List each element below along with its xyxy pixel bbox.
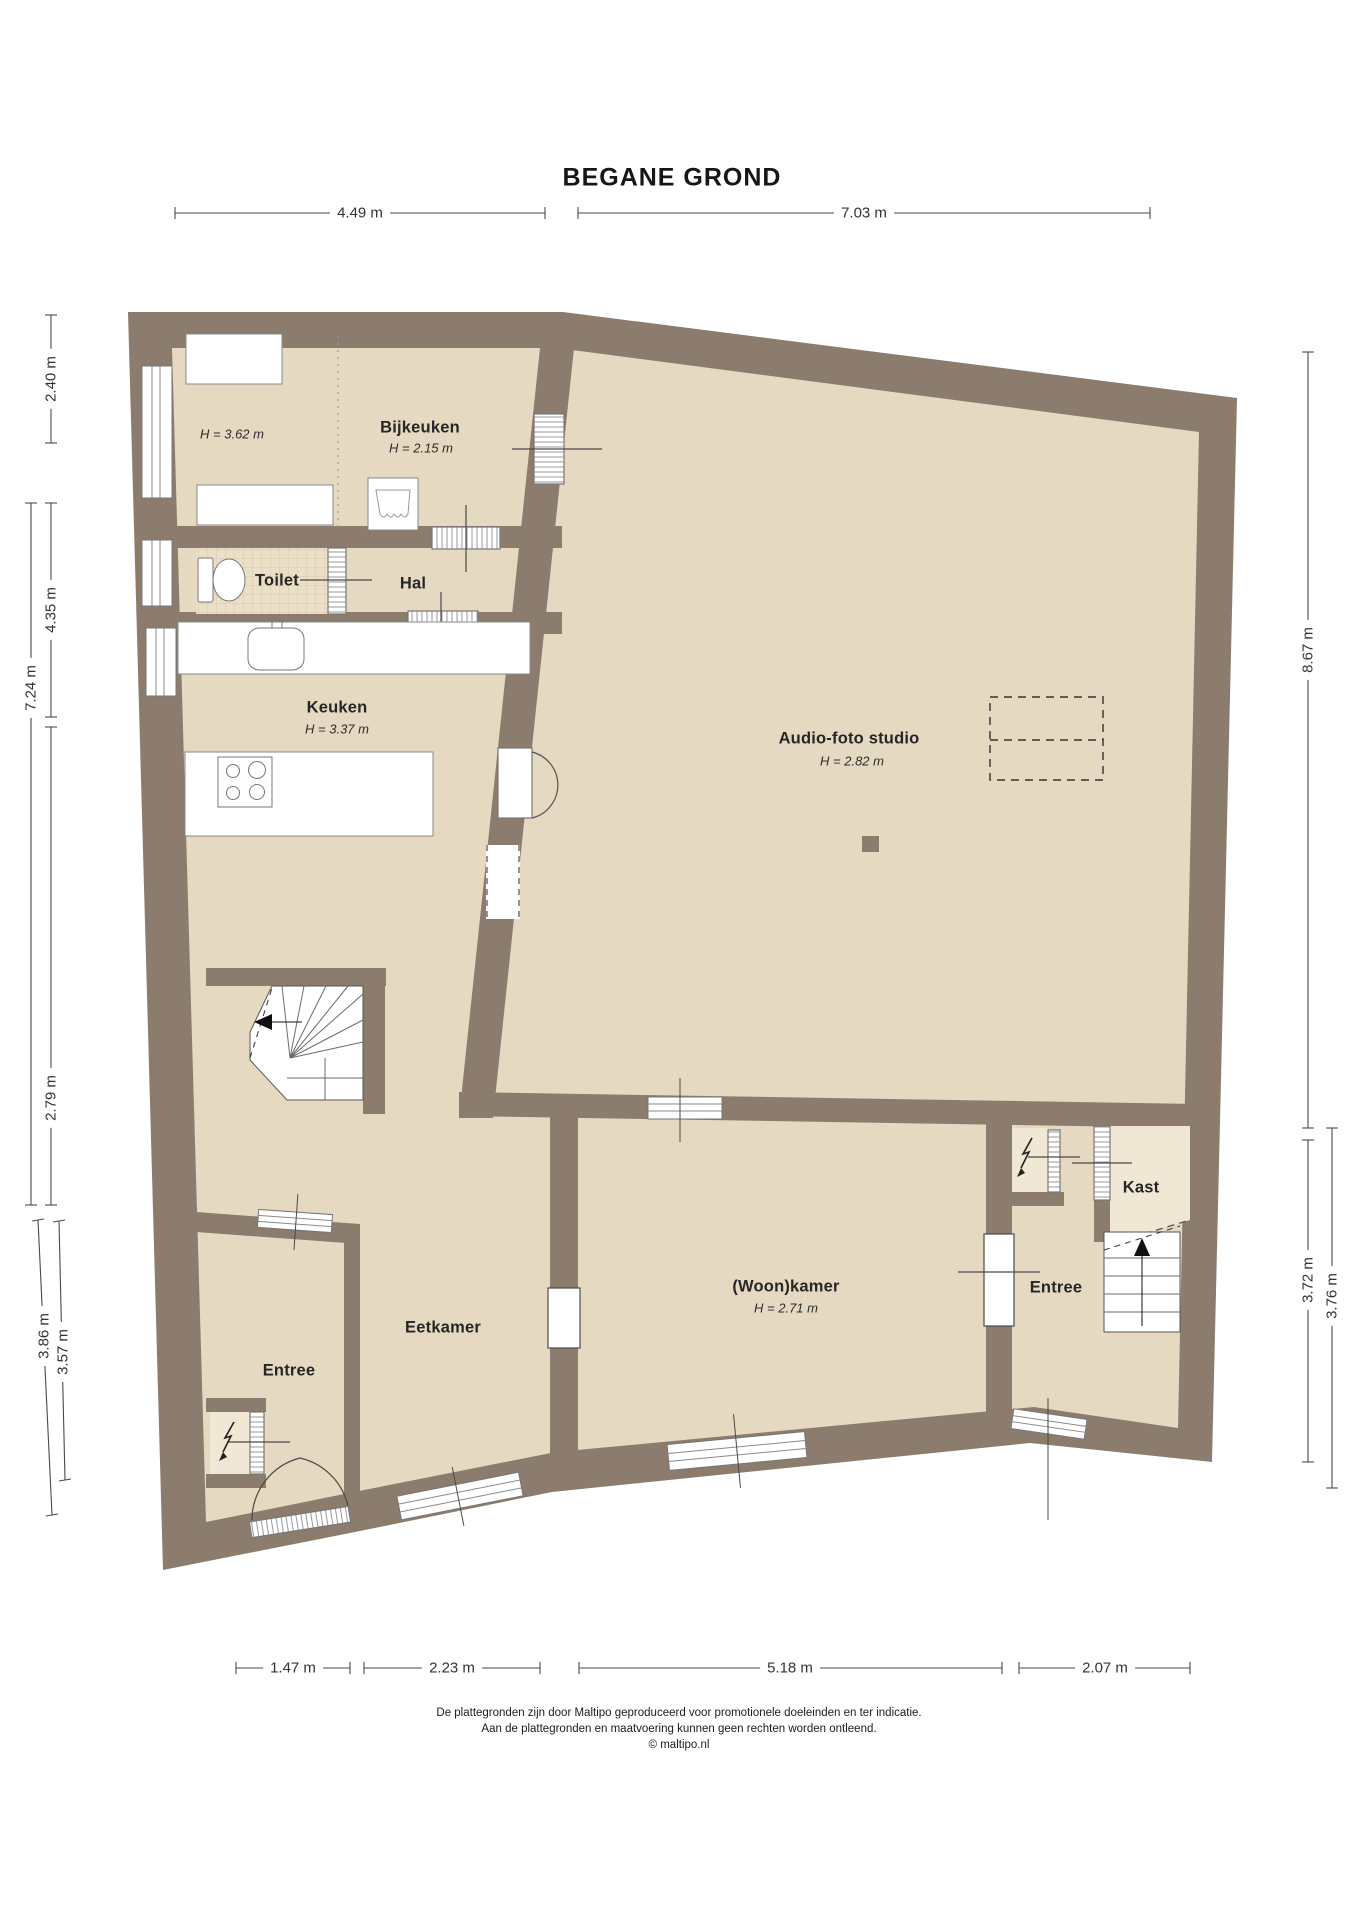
counter-bijkeuken: [197, 485, 333, 525]
room-studio-height: H = 2.82 m: [820, 754, 884, 769]
room-woonkamer-height: H = 2.71 m: [754, 1301, 818, 1316]
dim-left-240: 2.40 m: [43, 349, 60, 409]
room-entree-right: Entree: [1030, 1279, 1083, 1298]
footer-line-2: Aan de plattegronden en maatvoering kunn…: [481, 1721, 876, 1737]
dim-left-357: 3.57 m: [55, 1322, 72, 1382]
room-eetkamer: Eetkamer: [405, 1319, 481, 1338]
room-kast: Kast: [1123, 1179, 1160, 1198]
left-window-2: [142, 540, 172, 606]
dim-bottom-518: 5.18 m: [760, 1660, 820, 1677]
dim-bottom-207: 2.07 m: [1075, 1660, 1135, 1677]
footer-line-1: De plattegronden zijn door Maltipo gepro…: [436, 1705, 921, 1721]
dim-left-724: 7.24 m: [23, 658, 40, 718]
meter-closet-right-floor: [1012, 1128, 1048, 1192]
floorplan-svg: [0, 0, 1358, 1920]
kitchen-island: [185, 752, 433, 836]
room-bijkeuken-height: H = 2.15 m: [389, 441, 453, 456]
room-left-area-height: H = 3.62 m: [200, 427, 264, 442]
room-bijkeuken: Bijkeuken: [380, 419, 460, 438]
room-woonkamer: (Woon)kamer: [732, 1278, 839, 1297]
dim-left-435: 4.35 m: [43, 580, 60, 640]
room-entree-left: Entree: [263, 1362, 316, 1381]
staircase-right: [1104, 1226, 1180, 1332]
kitchen-sink-counter: [178, 617, 530, 674]
room-hal: Hal: [400, 575, 426, 594]
counter-top-left: [186, 334, 282, 384]
room-keuken: Keuken: [307, 699, 368, 718]
keuken-studio-opening: [486, 845, 520, 919]
dim-left-279: 2.79 m: [43, 1068, 60, 1128]
woonkamer-left-opening: [548, 1288, 580, 1348]
dim-top-left: 4.49 m: [330, 205, 390, 222]
column: [862, 836, 879, 852]
room-keuken-height: H = 3.37 m: [305, 722, 369, 737]
floorplan-page: BEGANE GROND 4.49 m 7.03 m 2.40 m 4.35 m…: [0, 0, 1358, 1920]
left-window-1: [142, 366, 172, 498]
dim-right-372: 3.72 m: [1300, 1250, 1317, 1310]
page-title: BEGANE GROND: [563, 164, 782, 193]
footer-line-3: © maltipo.nl: [649, 1737, 710, 1753]
left-window-3: [146, 628, 176, 696]
meter-closet-left-floor: [210, 1412, 250, 1474]
dim-top-right: 7.03 m: [834, 205, 894, 222]
room-studio: Audio-foto studio: [779, 730, 920, 749]
dim-bottom-147: 1.47 m: [263, 1660, 323, 1677]
toilet-bowl: [198, 558, 245, 602]
laundry-sink: [368, 478, 418, 530]
dim-right-376: 3.76 m: [1324, 1266, 1341, 1326]
dim-bottom-223: 2.23 m: [422, 1660, 482, 1677]
dim-right-867: 8.67 m: [1300, 620, 1317, 680]
room-toilet: Toilet: [255, 572, 299, 591]
dim-left-386: 3.86 m: [36, 1306, 53, 1366]
